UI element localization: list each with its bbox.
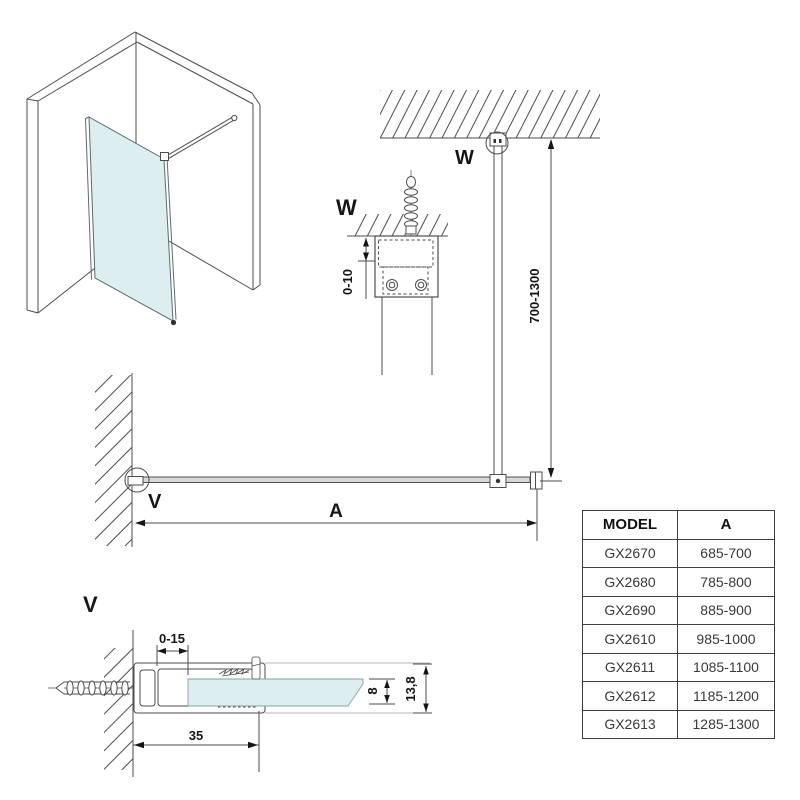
- table-cell: GX2610: [583, 625, 678, 654]
- dimension-gap-0-10: [358, 238, 375, 299]
- table-row: GX2690885-900: [583, 596, 775, 625]
- wall-profile-plan: [128, 477, 143, 486]
- dim-label-0-10: 0-10: [340, 269, 355, 295]
- table-cell: 985-1000: [678, 625, 775, 654]
- table-row: GX26131285-1300: [583, 710, 775, 739]
- table-cell: GX2690: [583, 596, 678, 625]
- dim-label-a: A: [329, 501, 343, 522]
- glass-panel-plan: [134, 477, 530, 483]
- wall-hatch: [95, 375, 132, 546]
- table-cell: GX2680: [583, 568, 678, 597]
- technical-drawing-page: W V A 700-1300: [0, 0, 800, 800]
- table-cell: 1085-1100: [678, 653, 775, 682]
- table-cell: 1285-1300: [678, 710, 775, 739]
- detail-w-hatch: [355, 214, 448, 236]
- floor-anchor-dot: [171, 320, 176, 325]
- detail-v-view: [48, 630, 432, 777]
- table-cell: GX2613: [583, 710, 678, 739]
- table-cell: GX2670: [583, 539, 678, 568]
- dimension-height: [540, 139, 562, 481]
- label-marker-w: W: [455, 147, 474, 169]
- glass-section: [188, 679, 363, 707]
- table-header-row: MODEL A: [583, 511, 775, 540]
- bar-glass-connector-3d: [161, 153, 169, 161]
- table-row: GX2680785-800: [583, 568, 775, 597]
- table-header-a: A: [678, 511, 775, 540]
- bar-ceiling-bracket: [490, 133, 506, 146]
- table-cell: 785-800: [678, 568, 775, 597]
- label-detail-w: W: [336, 195, 357, 220]
- ceiling-bracket-detail: [375, 236, 438, 297]
- detail-v-hatch: [104, 648, 133, 770]
- isometric-view: [27, 32, 260, 325]
- table-row: GX26111085-1100: [583, 653, 775, 682]
- table-header-model: MODEL: [583, 511, 678, 540]
- models-table-body: GX2670685-700GX2680785-800GX2690885-900G…: [583, 539, 775, 739]
- table-row: GX2610985-1000: [583, 625, 775, 654]
- support-bar-plan: [494, 146, 502, 476]
- support-bar-3d: [161, 115, 237, 160]
- dim-label-13-8: 13,8: [403, 676, 418, 701]
- table-cell: 885-900: [678, 596, 775, 625]
- models-table: MODEL A GX2670685-700GX2680785-800GX2690…: [582, 510, 775, 739]
- glass-panel-3d: [86, 117, 177, 325]
- ceiling-hatch: [380, 90, 600, 138]
- dim-label-height: 700-1300: [527, 269, 542, 324]
- table-row: GX26121185-1200: [583, 682, 775, 711]
- detail-w-view: [347, 170, 448, 375]
- table-cell: 1185-1200: [678, 682, 775, 711]
- label-detail-v: V: [83, 592, 98, 617]
- dim-label-8: 8: [365, 687, 380, 694]
- table-row: GX2670685-700: [583, 539, 775, 568]
- dim-label-35: 35: [189, 728, 203, 743]
- label-marker-v: V: [148, 491, 162, 513]
- table-cell: GX2611: [583, 653, 678, 682]
- table-cell: GX2612: [583, 682, 678, 711]
- table-cell: 685-700: [678, 539, 775, 568]
- dim-label-0-15: 0-15: [159, 631, 185, 646]
